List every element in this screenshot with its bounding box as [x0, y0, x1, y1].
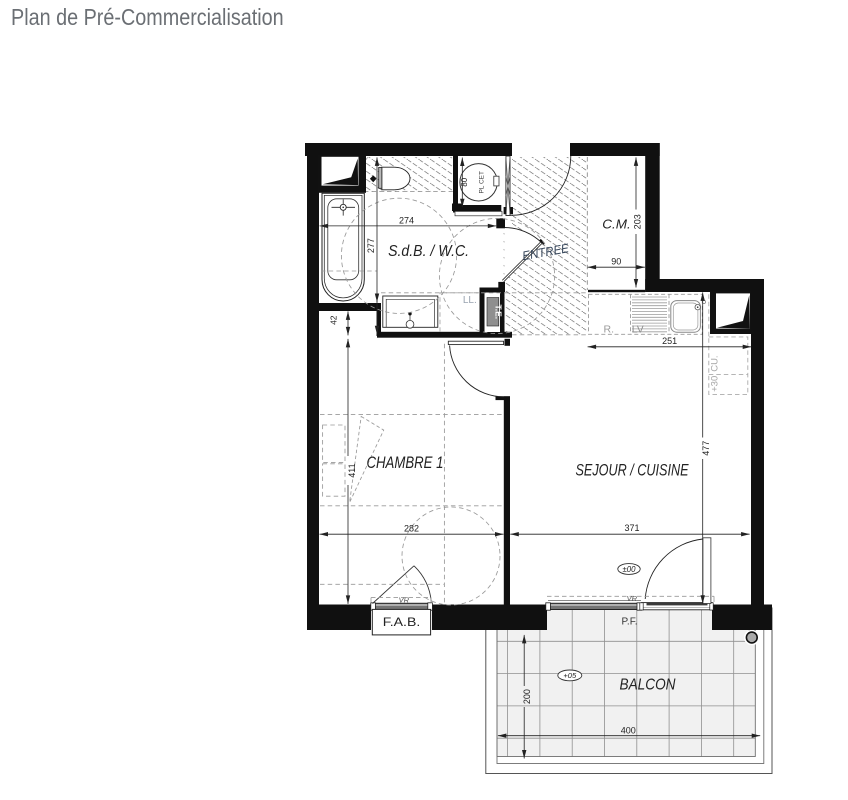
svg-text:F.A.B.: F.A.B. [383, 615, 421, 629]
svg-text:BALCON: BALCON [620, 677, 677, 694]
svg-text:PL CET: PL CET [479, 171, 486, 194]
svg-text:+30: +30 [710, 376, 721, 392]
svg-text:42: 42 [329, 315, 339, 325]
svg-text:400: 400 [621, 725, 636, 735]
svg-text:282: 282 [404, 524, 419, 534]
svg-text:251: 251 [662, 336, 677, 346]
svg-text:S.d.B. / W.C.: S.d.B. / W.C. [388, 243, 469, 260]
svg-text:CHAMBRE 1: CHAMBRE 1 [367, 454, 444, 472]
svg-text:274: 274 [399, 216, 414, 226]
svg-text:200: 200 [522, 689, 532, 704]
svg-text:P.F.: P.F. [622, 616, 638, 627]
svg-text:477: 477 [701, 441, 711, 456]
svg-text:CU.: CU. [710, 355, 721, 371]
svg-text:LV: LV [632, 324, 644, 336]
svg-text:80: 80 [460, 177, 469, 186]
svg-text:LL.: LL. [463, 295, 477, 306]
svg-text:411: 411 [347, 463, 357, 477]
svg-text:T.E.: T.E. [494, 304, 504, 319]
svg-text:90: 90 [611, 256, 621, 266]
svg-text:277: 277 [366, 238, 376, 253]
svg-text:203: 203 [632, 214, 642, 229]
svg-text:SEJOUR / CUISINE: SEJOUR / CUISINE [576, 462, 690, 480]
svg-text:C.M.: C.M. [602, 217, 631, 232]
svg-text:R.: R. [604, 324, 615, 336]
svg-text:VR: VR [399, 596, 410, 605]
svg-text:371: 371 [624, 523, 639, 533]
svg-text:+05: +05 [563, 671, 577, 680]
svg-text:±00: ±00 [623, 565, 637, 574]
svg-text:VR: VR [627, 594, 638, 603]
